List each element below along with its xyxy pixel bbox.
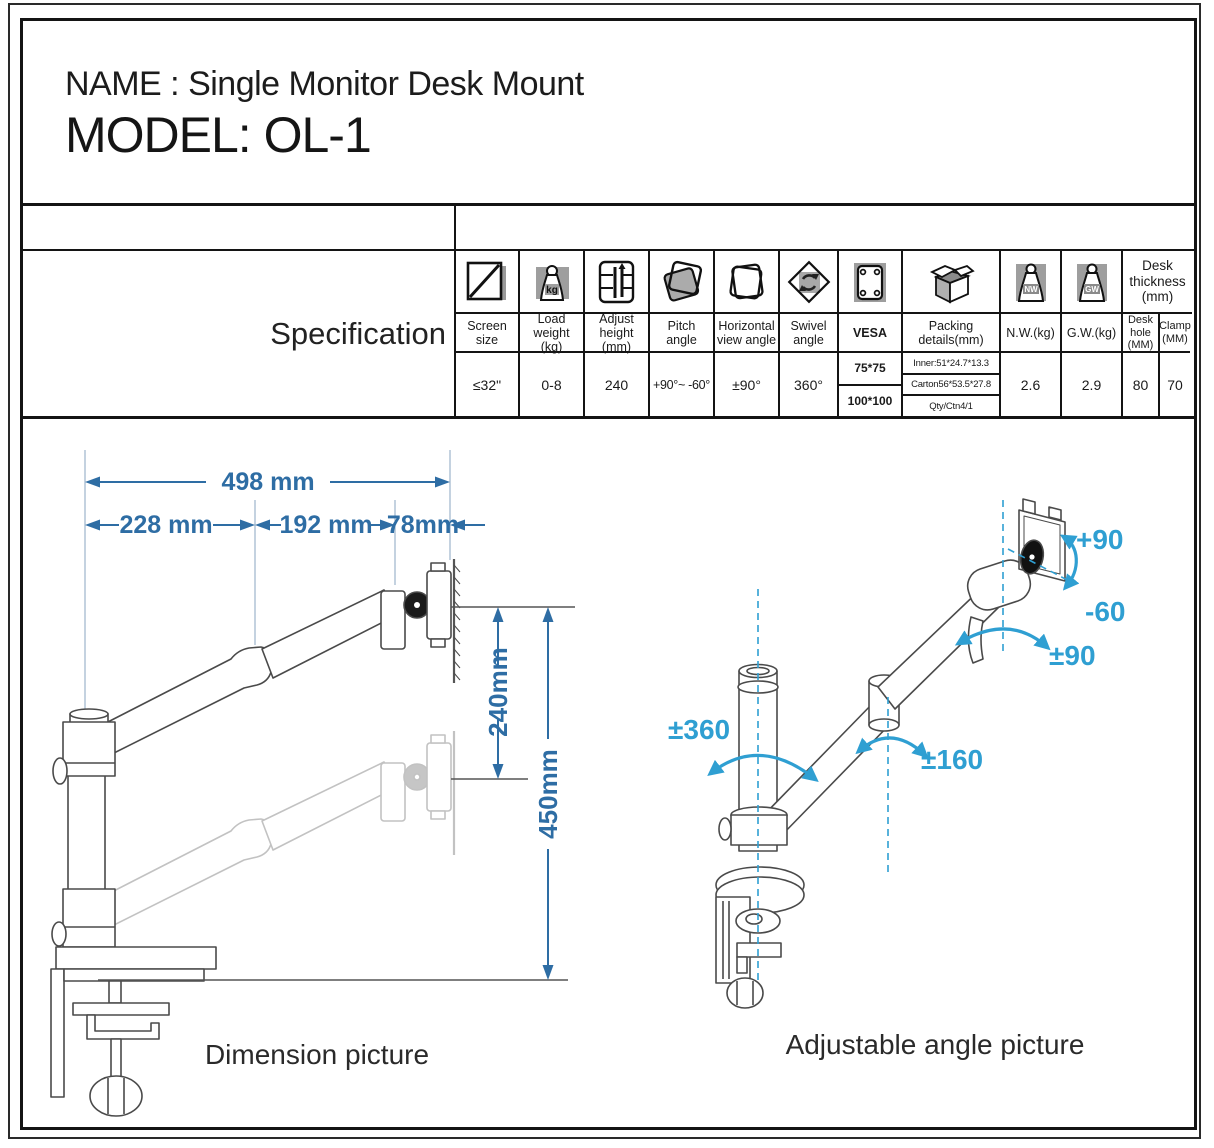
col-load-weight: kg Load weight (kg) 0-8 <box>520 251 585 416</box>
vesa-values: 75*75 100*100 <box>839 353 901 416</box>
load-weight-icon: kg <box>520 251 583 314</box>
content-frame: NAME : Single Monitor Desk Mount MODEL: … <box>20 18 1197 1130</box>
angle-head-swivel-label: ±90 <box>1049 640 1096 671</box>
angle-diagram: +90 -60 ±90 ±360 ±160 Adjustable angle p… <box>668 499 1125 1060</box>
product-model: MODEL: OL-1 <box>65 106 1194 164</box>
swivel-angle-icon <box>780 251 837 314</box>
col-pitch-angle: Pitch angle +90°~ -60° <box>650 251 715 416</box>
col-gross-weight: GW G.W.(kg) 2.9 <box>1062 251 1123 416</box>
col-swivel-angle: Swivel angle 360° <box>780 251 839 416</box>
col-clamp: Clamp (MM) 70 <box>1160 314 1190 416</box>
dim-total-reach-label: 498 mm <box>221 468 314 496</box>
col-adjust-height: Adjust height (mm) 240 <box>585 251 650 416</box>
vesa-icon <box>839 251 901 314</box>
spec-columns: Screen size ≤32" kg <box>456 251 1194 416</box>
screen-size-icon <box>456 251 518 314</box>
spec-sheet-page: NAME : Single Monitor Desk Mount MODEL: … <box>0 0 1214 1148</box>
col-desk-hole: Desk hole (MM) 80 <box>1123 314 1160 416</box>
col-net-weight: NW N.W.(kg) 2.6 <box>1001 251 1062 416</box>
nw-weight-icon: NW <box>1001 251 1060 314</box>
diagrams-svg: 498 mm 228 mm 192 mm 78mm <box>23 419 1194 1122</box>
svg-text:kg: kg <box>546 285 558 296</box>
dim-pole-height-label: 450mm <box>533 749 563 839</box>
header-section: NAME : Single Monitor Desk Mount MODEL: … <box>23 21 1194 206</box>
spec-empty-row <box>23 206 1194 251</box>
col-desk-thickness-group: Desk thickness (mm) Desk hole (MM) 80 Cl… <box>1123 251 1192 416</box>
dim-head-label: 78mm <box>387 511 459 539</box>
col-horizontal-view: Horizontal view angle ±90° <box>715 251 780 416</box>
pitch-angle-icon <box>650 251 713 314</box>
angle-tilt-up-label: +90 <box>1076 524 1124 555</box>
specification-label: Specification <box>23 251 456 416</box>
diagrams-section: 498 mm 228 mm 192 mm 78mm <box>23 419 1194 1127</box>
dim-front-arm-label: 192 mm <box>279 511 372 539</box>
dimension-diagram: 498 mm 228 mm 192 mm 78mm <box>51 450 575 1116</box>
svg-text:GW: GW <box>1085 285 1099 294</box>
col-screen-size: Screen size ≤32" <box>456 251 520 416</box>
angle-elbow-rotation-label: ±160 <box>921 744 983 775</box>
horizontal-view-icon <box>715 251 778 314</box>
desk-clamp-drawing <box>51 889 216 1116</box>
gw-weight-icon: GW <box>1062 251 1121 314</box>
adjust-height-icon <box>585 251 648 314</box>
col-packing: Packing details(mm) Inner:51*24.7*13.3 C… <box>903 251 1001 416</box>
specification-table: Specification Screen size ≤32" <box>23 206 1194 419</box>
dim-rear-arm-label: 228 mm <box>119 511 212 539</box>
product-name: NAME : Single Monitor Desk Mount <box>65 65 1194 104</box>
packing-values: Inner:51*24.7*13.3 Carton56*53.5*27.8 Qt… <box>903 353 999 416</box>
monitor-arm-ghost <box>101 731 454 928</box>
dimension-caption: Dimension picture <box>205 1039 429 1070</box>
svg-text:NW: NW <box>1024 285 1038 294</box>
col-vesa: VESA 75*75 100*100 <box>839 251 903 416</box>
packing-box-icon <box>903 251 999 314</box>
angle-tilt-down-label: -60 <box>1085 596 1125 627</box>
desk-thickness-header: Desk thickness (mm) <box>1123 251 1192 314</box>
angle-arm-drawing <box>716 499 1065 1008</box>
angle-base-rotation-label: ±360 <box>668 714 730 745</box>
angle-caption: Adjustable angle picture <box>786 1029 1085 1060</box>
